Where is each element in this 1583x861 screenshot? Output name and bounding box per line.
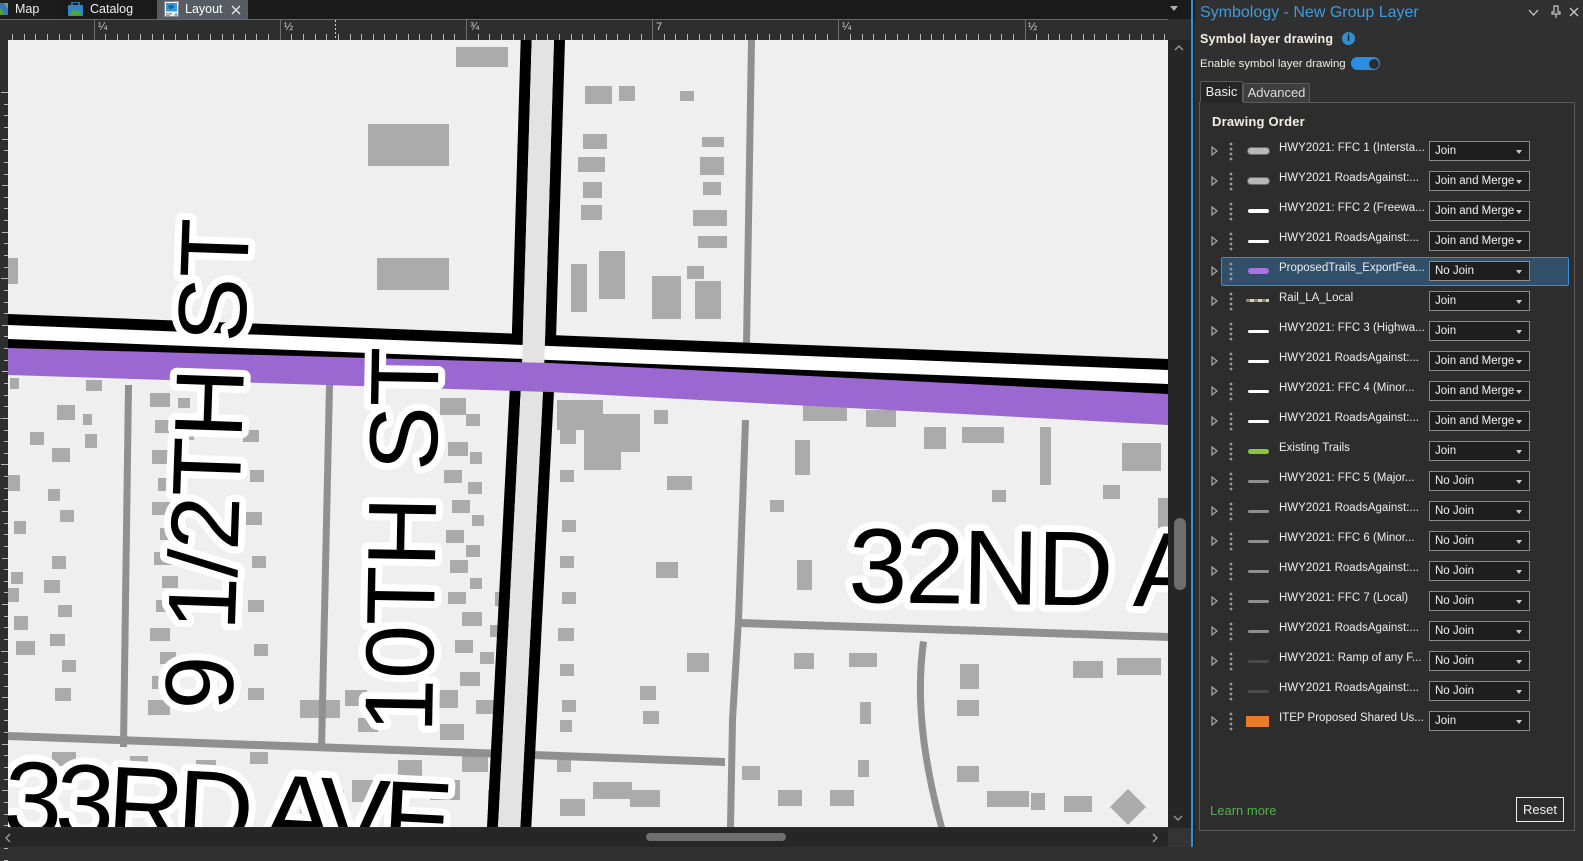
- svg-text:9 1/2TH ST: 9 1/2TH ST: [144, 217, 270, 711]
- svg-text:10TH ST: 10TH ST: [344, 347, 460, 733]
- svg-text:32ND AVE: 32ND AVE: [848, 507, 1168, 632]
